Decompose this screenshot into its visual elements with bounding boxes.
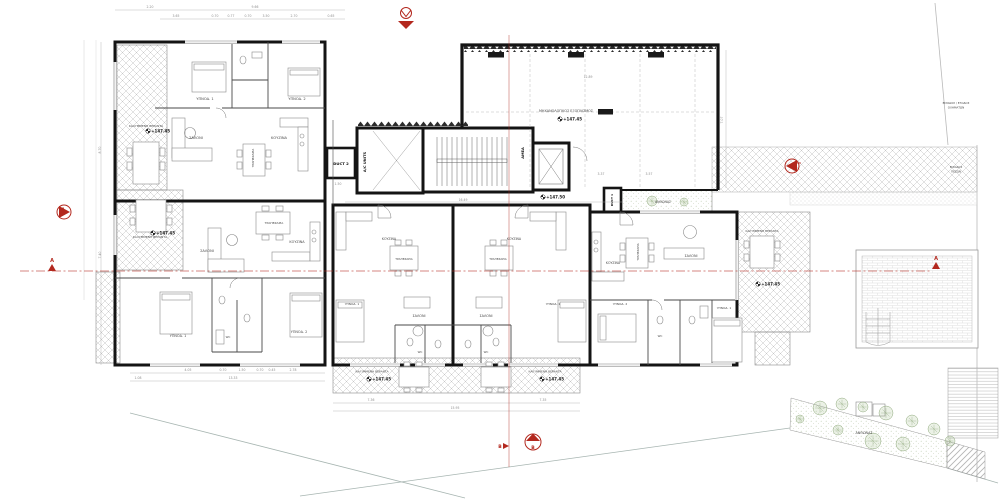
- block-middle-outline: [333, 205, 590, 365]
- bed-aptA-2: [288, 68, 320, 96]
- room-label-living-aptE: ΣΑΛΟΝΙ: [685, 254, 698, 258]
- veranda-aptE-corner-area: [755, 332, 790, 365]
- room-label-wc-aptC: WC: [418, 350, 423, 354]
- insulation-strip-core: [358, 122, 468, 128]
- room-label-wc-aptE: WC: [658, 334, 663, 338]
- dimension-text: 16.49: [459, 198, 468, 202]
- dimension-text: 4.05: [185, 368, 192, 372]
- door-aptB-hall: [230, 278, 240, 288]
- dimension-text: 15.95: [451, 406, 460, 410]
- kitchen-counter-aptC: [336, 212, 372, 250]
- room-label-veranda-aptE: ΚΑΛΥΜΜΕΝΗ ΒΕΡΑΝΤΑ: [745, 229, 778, 233]
- dimension-text: 3.37: [598, 172, 605, 176]
- dimension-text: 0.77: [228, 14, 235, 18]
- tree: [836, 398, 848, 410]
- insulation-strips: [358, 47, 716, 128]
- dimension-text: 3.65: [173, 14, 180, 18]
- room-label-veranda-aptA: ΚΑΛΥΜΜΕΝΗ ΒΕΡΑΝΤΑ: [129, 124, 164, 128]
- mechanical-columns: [488, 52, 664, 115]
- dimension-text: 3.57: [646, 172, 653, 176]
- room-label-entrance-vehicles-line1: ΕΙΣΟΔΟΣ / ΕΞΟΔΟΣ: [943, 101, 970, 105]
- tree: [879, 406, 893, 420]
- section-roof-b: [526, 434, 540, 442]
- tree: [906, 415, 918, 427]
- table-veranda-aptB: [130, 200, 172, 232]
- dimension-text: 9.66: [252, 5, 259, 9]
- room-label-bedroom1-aptC: ΥΠΝΟΔ. 1: [345, 302, 360, 306]
- elevation-marker-level-veranda-aptD: +147.45: [540, 376, 564, 381]
- stairwell: [423, 128, 533, 192]
- room-label-planter-core: ΑΝΘΩΝΑΣ: [655, 200, 671, 204]
- dimension-text: 7.07: [720, 117, 724, 124]
- elevation-marker-level-entrance-core: +147.50: [541, 194, 565, 199]
- tree: [796, 415, 804, 423]
- room-label-bedroom2-aptA: ΥΠΝΟΔ. 2: [288, 97, 305, 101]
- tree: [928, 423, 940, 435]
- room-label-entrance-pedestrians-line1: ΕΙΣΟΔΟΣ: [950, 165, 963, 169]
- pool-basin: [862, 256, 972, 342]
- dimension-text: 7.36: [368, 398, 375, 402]
- dimension-text: 8.70: [98, 147, 102, 154]
- section-letter-a-left: A: [50, 258, 54, 264]
- walkway-band-east: [712, 147, 977, 192]
- bed-aptB-1: [160, 292, 192, 334]
- level-value: +147.45: [563, 116, 582, 121]
- door-aptA-hall: [216, 108, 226, 118]
- floor-plan-canvas: A A B B ΥΠΝΟΔ. 1Υ: [0, 0, 1000, 500]
- room-label-living-aptC: ΣΑΛΟΝΙ: [413, 314, 426, 318]
- dimension-text: 0.70: [245, 14, 252, 18]
- elevation-marker-level-veranda-aptA: +147.45: [146, 128, 170, 133]
- site-boundary-southwest: [130, 413, 465, 498]
- pool: [856, 250, 978, 348]
- elevation-marker-level-veranda-aptE: +147.45: [756, 281, 780, 286]
- dimension-text: 1.08: [135, 376, 142, 380]
- dimension-text: 0.70: [212, 14, 219, 18]
- room-label-dining-aptA: ΤΡΑΠΕΖΑΡΙΑ: [251, 148, 255, 169]
- bed-aptC: [336, 300, 364, 342]
- dimension-text: 1.50: [239, 368, 246, 372]
- room-label-dining-aptE: ΤΡΑΠΕΖΑΡΙΑ: [636, 243, 640, 262]
- floor-plan-sheet: A A B B ΥΠΝΟΔ. 1Υ: [0, 0, 1000, 500]
- tree: [858, 402, 868, 412]
- kitchen-counter-aptA: [280, 118, 308, 171]
- room-label-garden-planter: ΑΝΘΩΝΑΣ: [855, 431, 872, 435]
- room-label-ac-units: A/C UNITS: [363, 151, 367, 172]
- room-label-living-aptD: ΣΑΛΟΝΙ: [480, 314, 493, 318]
- gravel-strip-east: [790, 192, 977, 205]
- room-label-living-aptB: ΣΑΛΟΝΙ: [200, 249, 214, 253]
- section-arrow-a-left: [48, 264, 56, 271]
- bed-aptE-1: [712, 318, 742, 362]
- level-value: +147.45: [372, 376, 391, 381]
- dimension-text: 0.70: [257, 368, 264, 372]
- level-value: +147.45: [761, 281, 780, 286]
- tree: [680, 198, 688, 206]
- north-indicator: [398, 8, 414, 30]
- elevation-marker-level-veranda-aptB: +147.45: [151, 230, 175, 235]
- ac-units-cross: [373, 131, 420, 190]
- tree: [945, 436, 955, 446]
- kitchen-counter-aptE: [592, 232, 624, 281]
- dimension-text: 0.70: [220, 368, 227, 372]
- level-value: +147.45: [545, 376, 564, 381]
- site-boundary-south: [300, 428, 790, 496]
- dimension-text: 3.50: [263, 14, 270, 18]
- room-label-duct2: DUCT 2: [333, 161, 349, 166]
- elevator-cross: [539, 149, 563, 184]
- tree: [896, 437, 910, 451]
- room-label-kitchen-aptE: ΚΟΥΖΙΝΑ: [606, 261, 621, 265]
- room-label-kitchen-aptB: ΚΟΥΖΙΝΑ: [289, 240, 305, 244]
- tree: [865, 433, 881, 449]
- room-label-dining-aptC: ΤΡΑΠΕΖΑΡΙΑ: [394, 257, 413, 261]
- kitchen-counter-aptD: [530, 212, 566, 250]
- door-aptC-entry: [378, 205, 391, 218]
- room-label-duct1: DUCT 1: [610, 194, 614, 206]
- site-boundary-northeast: [935, 3, 948, 145]
- room-label-kitchen-aptC: ΚΟΥΖΙΝΑ: [382, 237, 397, 241]
- room-label-veranda-aptC: ΚΑΛΥΜΜΕΝΗ ΒΕΡΑΝΤΑ: [355, 370, 388, 374]
- room-label-bedroom1-aptA: ΥΠΝΟΔ. 1: [196, 97, 213, 101]
- room-label-dining-aptB: ΤΡΑΠΕΖΑΡΙΑ: [264, 221, 285, 225]
- level-value: +147.45: [151, 128, 170, 133]
- dimension-text: 13.33: [229, 376, 238, 380]
- room-label-entrance-vehicles-line2: ΟΧΗΜΑΤΩΝ: [948, 106, 965, 110]
- tree: [833, 425, 843, 435]
- room-label-bedroom1-aptD: ΥΠΝΟΔ. 1: [546, 302, 561, 306]
- ramp-southeast: [947, 441, 985, 479]
- room-label-bedroom1-aptE: ΥΠΝΟΔ. 1: [717, 306, 732, 310]
- dimension-text: 12.89: [584, 75, 593, 79]
- elevation-marker-level-mechanical: +147.45: [558, 116, 582, 121]
- room-label-entrance-pedestrians-line2: ΠΕΖΩΝ: [951, 170, 961, 174]
- insulation-strip-top: [464, 47, 716, 53]
- level-value: +147.50: [546, 194, 565, 199]
- bed-aptA-1: [192, 62, 226, 92]
- section-letter-b-circle: B: [531, 445, 535, 451]
- tree: [813, 401, 827, 415]
- room-label-bedroom2-aptB: ΥΠΝΟΔ. 2: [291, 330, 307, 334]
- room-label-bedroom2-aptE: ΥΠΝΟΔ. 2: [613, 302, 628, 306]
- section-letter-a-right: A: [934, 256, 938, 262]
- level-value: +147.45: [156, 230, 175, 235]
- dimension-text: 2.70: [291, 14, 298, 18]
- dimension-text: 0.65: [328, 14, 335, 18]
- core: [327, 128, 621, 212]
- room-label-bedroom1-aptB: ΥΠΝΟΔ. 1: [170, 334, 186, 338]
- door-aptE-entry: [620, 212, 633, 225]
- bed-aptD: [558, 300, 586, 342]
- room-label-wc-aptD: WC: [484, 350, 489, 354]
- bed-aptE-2: [598, 314, 636, 342]
- wall-aptA-bath: [232, 42, 268, 108]
- door-aptD-entry: [515, 205, 528, 218]
- room-label-mechanical-area: ΜΗΧΑΝΟΛΟΓΙΚΟΣ ΕΞΟΠΛΙΣΜΟΣ: [539, 109, 593, 113]
- section-arrow-b: [503, 443, 509, 449]
- room-label-wc-aptB: WC: [226, 335, 231, 339]
- elevation-marker-level-veranda-aptC: +147.45: [367, 376, 391, 381]
- section-letter-b-small: B: [498, 444, 502, 450]
- room-label-veranda-aptD: ΚΑΛΥΜΜΕΝΗ ΒΕΡΑΝΤΑ: [528, 370, 561, 374]
- room-label-living-aptA: ΣΑΛΟΝΙ: [189, 136, 203, 140]
- dimension-text: 2.20: [147, 5, 154, 9]
- section-marker-a-left: A: [48, 258, 56, 271]
- mechanical-area-walls: [462, 45, 718, 190]
- dimension-text: 2.78: [290, 368, 297, 372]
- dimension-text: 1.50: [335, 182, 342, 186]
- dimension-text: 0.45: [269, 368, 276, 372]
- room-label-amea: ΑΜΕΑ: [521, 147, 525, 159]
- stair-treads: [437, 137, 507, 186]
- section-marker-b: B B: [498, 434, 541, 452]
- room-label-kitchen-aptA: ΚΟΥΖΙΝΑ: [271, 136, 288, 140]
- room-label-kitchen-aptD: ΚΟΥΖΙΝΑ: [507, 237, 522, 241]
- door-aptE-hall: [652, 300, 662, 310]
- room-label-dining-aptD: ΤΡΑΠΕΖΑΡΙΑ: [488, 257, 507, 261]
- section-indicator-west: [57, 205, 71, 219]
- room-label-veranda-aptB: ΚΑΛΥΜΜΕΝΗ ΒΕΡΑΝΤΑ: [133, 235, 168, 239]
- dimension-text: 7.35: [540, 398, 547, 402]
- dimension-text: 7.40: [98, 252, 102, 259]
- steps-east: [948, 368, 998, 438]
